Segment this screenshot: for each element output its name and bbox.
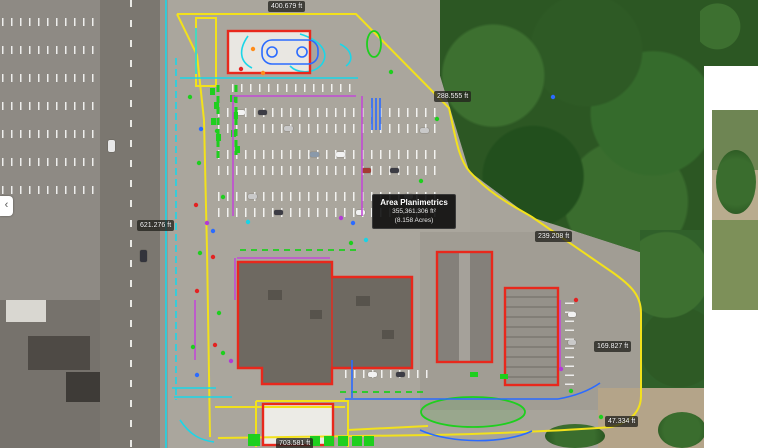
measurement-label-north[interactable]: 400.679 ft: [268, 1, 305, 12]
aerial-map-canvas: 400.679 ft 288.555 ft 239.208 ft 169.827…: [0, 0, 758, 448]
collapse-panel-chip[interactable]: ‹: [0, 196, 13, 216]
area-tooltip-acres: (8.158 Acres): [375, 217, 453, 226]
building-outlines[interactable]: [228, 31, 558, 445]
measurement-label-south[interactable]: 703.581 ft: [276, 438, 313, 448]
measurement-label-east-upper[interactable]: 239.208 ft: [535, 231, 572, 242]
chevron-left-icon: ‹: [5, 199, 9, 211]
area-tooltip-sqft: 355,361.306 ft²: [375, 208, 453, 217]
measurement-label-northeast[interactable]: 288.555 ft: [434, 91, 471, 102]
measurement-label-west[interactable]: 621.276 ft: [137, 220, 174, 231]
measurement-label-southeast[interactable]: 47.334 ft: [605, 416, 638, 427]
area-tooltip-title: Area Planimetrics: [375, 198, 453, 208]
area-tooltip[interactable]: Area Planimetrics 355,361.306 ft² (8.158…: [372, 194, 456, 229]
measurement-label-east-lower[interactable]: 169.827 ft: [594, 341, 631, 352]
site-boundary-polyline[interactable]: [177, 14, 641, 447]
